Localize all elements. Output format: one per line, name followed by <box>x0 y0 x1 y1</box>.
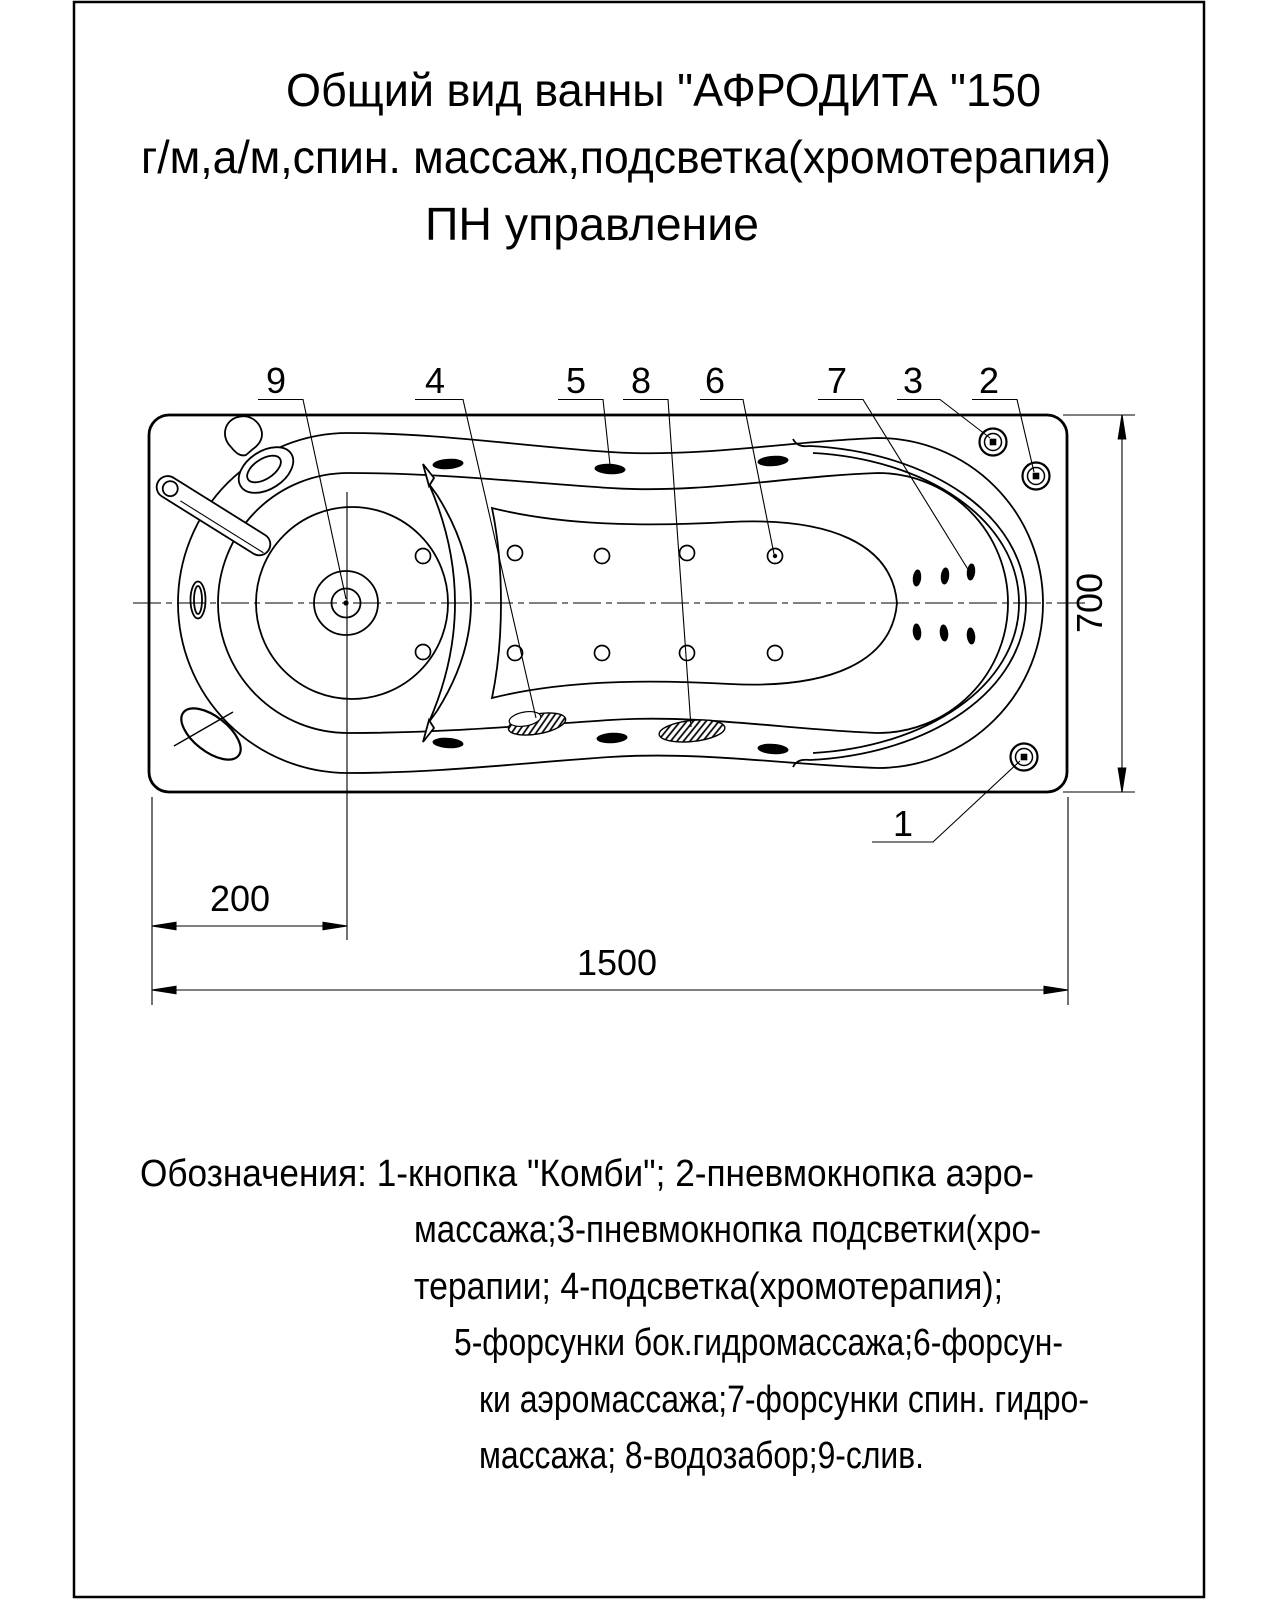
callout-label: 2 <box>979 360 999 401</box>
arrowhead <box>323 922 347 929</box>
legend-line-1: Обозначения: 1-кнопка "Комби"; 2-пневмок… <box>140 1153 1034 1195</box>
dimension-700: 700 <box>1063 415 1135 792</box>
arrowhead <box>1118 415 1126 439</box>
title-line-1: Общий вид ванны "АФРОДИТА "150 <box>286 64 1041 116</box>
back-jets <box>912 563 976 645</box>
back-jet <box>940 567 950 585</box>
legend: Обозначения: 1-кнопка "Комби"; 2-пневмок… <box>140 1153 1089 1477</box>
callout-label: 5 <box>566 360 586 401</box>
callout-label: 4 <box>425 360 445 401</box>
dimension-1500: 1500 <box>152 797 1068 1005</box>
drawing-title: Общий вид ванны "АФРОДИТА "150 г/м,а/м,с… <box>141 64 1111 250</box>
side-jet <box>757 455 789 468</box>
legend-line-3: терапии; 4-подсветка(хромотерапия); <box>414 1266 1003 1308</box>
air-jet-hole <box>768 646 783 661</box>
back-jet <box>966 627 976 645</box>
callout-label: 3 <box>903 360 923 401</box>
dim-200-label: 200 <box>210 878 270 919</box>
arrowhead <box>1044 986 1068 993</box>
technical-drawing-page: Общий вид ванны "АФРОДИТА "150 г/м,а/м,с… <box>0 0 1280 1600</box>
faucet-lever-lower <box>173 699 250 770</box>
callout-label: 1 <box>893 803 913 844</box>
drawing-canvas: Общий вид ванны "АФРОДИТА "150 г/м,а/м,с… <box>0 0 1280 1600</box>
side-jet <box>432 458 464 471</box>
callout-7: 7 <box>818 360 969 571</box>
legend-line-2: массажа;3-пневмокнопка подсветки(хро- <box>414 1209 1041 1251</box>
back-jet <box>912 569 922 587</box>
dimension-200: 200 <box>152 797 347 1005</box>
back-jet <box>966 563 976 581</box>
air-jet-hole <box>416 645 431 660</box>
side-jet <box>596 732 628 744</box>
callout-label: 9 <box>266 360 286 401</box>
legend-line-4: 5-форсунки бок.гидромассажа;6-форсун- <box>454 1322 1063 1364</box>
air-jet-hole <box>508 546 523 561</box>
dimensions: 700 200 1500 <box>152 415 1135 1005</box>
air-jet-hole <box>680 546 695 561</box>
faucet-spout <box>225 416 302 502</box>
air-jet-hole <box>416 549 431 564</box>
title-line-3: ПН управление <box>425 198 759 250</box>
air-jet-dot <box>773 554 777 558</box>
button-aero-2 <box>1023 463 1050 490</box>
arrowhead <box>152 986 176 993</box>
air-jet-hole <box>680 646 695 661</box>
side-jet <box>432 737 464 750</box>
dim-1500-label: 1500 <box>577 942 657 983</box>
callout-6: 6 <box>700 360 774 554</box>
legend-line-6: массажа; 8-водозабор;9-слив. <box>479 1435 924 1477</box>
callout-1: 1 <box>872 761 1020 844</box>
arrowhead <box>1118 768 1126 792</box>
callout-label: 6 <box>705 360 725 401</box>
overflow-outlet <box>191 582 206 619</box>
chromotherapy-light <box>507 709 568 739</box>
dim-700-label: 700 <box>1069 573 1110 633</box>
legend-line-5: ки аэромассажа;7-форсунки спин. гидро- <box>479 1379 1089 1421</box>
back-jet <box>939 624 949 642</box>
air-jet-hole <box>595 646 610 661</box>
bathtub-top-view <box>133 415 1090 940</box>
arrowhead <box>152 922 176 929</box>
back-jet <box>912 623 922 641</box>
callout-label: 8 <box>631 360 651 401</box>
side-jet <box>757 743 789 756</box>
air-jet-hole <box>595 549 610 564</box>
title-line-2: г/м,а/м,спин. массаж,подсветка(хромотера… <box>141 131 1111 183</box>
callout-label: 7 <box>827 360 847 401</box>
water-intake <box>658 717 726 745</box>
